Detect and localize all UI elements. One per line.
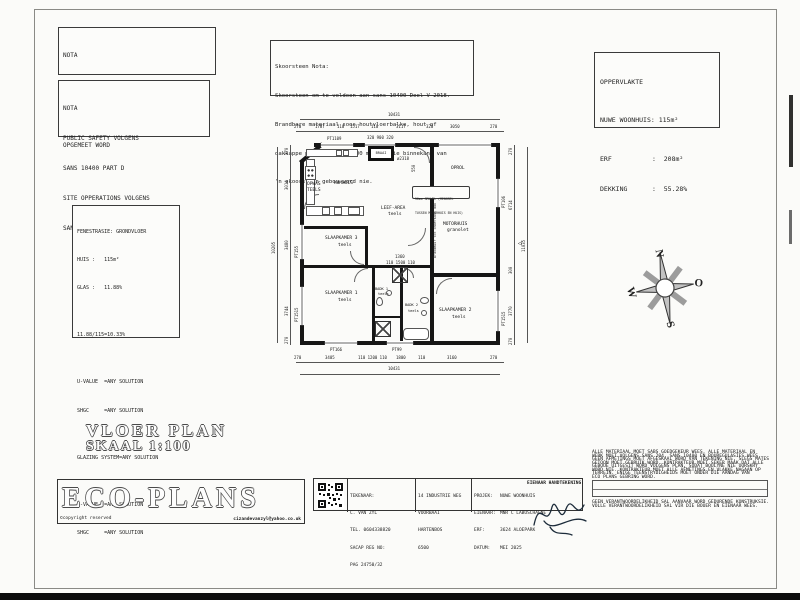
garage-rollup-door <box>438 143 492 147</box>
legal-disclaimer-bottom: GEEN VERANTWOORDELIKHEID SAL AANVAAR WOR… <box>592 501 769 508</box>
drawing-title: VLOER PLAN <box>86 421 227 441</box>
note-title: NOTA <box>63 51 211 61</box>
dim-line <box>300 119 500 120</box>
window-code: PT166 <box>330 347 342 352</box>
dim-mid: 1360 <box>395 254 405 259</box>
wall-bed3-right <box>365 226 368 266</box>
window-code: PT99 <box>392 347 402 352</box>
dim-550: 550 <box>411 158 416 172</box>
dim-bottom-total: 10431 <box>388 366 400 371</box>
toilet-1 <box>376 297 383 306</box>
kitchen-sink-2 <box>343 150 349 156</box>
shower-1 <box>392 267 408 283</box>
dim-sub: 320 900 320 <box>367 135 394 140</box>
note-chimney: Skoorsteen Nota: Skoorsteen om te voldoe… <box>270 40 474 96</box>
window-bed1 <box>300 286 304 326</box>
dim-mid: 110 1500 110 <box>386 260 415 265</box>
note-public-safety: NOTA PUBLIC SAFETY VOLGENS SANS 10400 PA… <box>58 80 210 137</box>
scan-artifact-right <box>789 95 793 167</box>
braai-unit: BRAAI <box>368 146 394 161</box>
dim-line <box>277 147 278 343</box>
stove <box>305 166 316 180</box>
area-summary: OPPERVLAKTE NUWE WOONHUIS: 115m² ERF: 20… <box>594 52 720 128</box>
window-code: PT106 <box>501 182 506 208</box>
legal-disclaimer-top: ALLE MATERIAAL MOET SABS GOEDGEKEUR WEES… <box>592 451 769 479</box>
compass-south: S <box>663 320 676 330</box>
room-label-scullery: OPWAS <box>307 182 321 187</box>
room-label-bed3: SLAAPKAMER 3 <box>325 236 358 241</box>
dim-left-total: 10205 <box>271 234 276 254</box>
room-label-bath2: BADK 2 <box>405 303 418 307</box>
note-title: NOTA <box>63 104 205 114</box>
room-label-bed2: SLAAPKAMER 2 <box>439 308 472 313</box>
note-doors-windows: NOTA ALLE DEURE EN VENSTERS MOET DEUR DI… <box>58 27 216 75</box>
dim-flue: ø2318 <box>397 156 409 161</box>
drawing-scale: SKAAL 1:100 <box>86 439 192 455</box>
tumble-dryer <box>334 207 342 215</box>
compass-rose: N O S W <box>621 241 710 335</box>
dim-line <box>290 145 291 345</box>
window-code: PT155 <box>294 228 299 258</box>
drafter-cell: TEKENAAR: C. VAN ZYL TEL. 0604338820 SAC… <box>350 482 391 581</box>
level-marker: ◁ <box>518 240 522 247</box>
dim-line <box>296 131 504 132</box>
window-bed1-south <box>324 341 358 345</box>
room-label-rollup: OPROL <box>451 166 465 171</box>
washing-machine <box>322 207 330 215</box>
window-garage <box>496 178 500 208</box>
dim-line <box>296 362 504 363</box>
shower-2 <box>375 321 391 337</box>
signature-field <box>592 480 768 497</box>
compass-north: N <box>653 249 666 259</box>
wall-bed3-top <box>304 226 365 229</box>
scan-artifact-bottom <box>0 593 800 600</box>
window-kitchen <box>320 143 354 147</box>
dim-top-total: 10431 <box>388 112 400 117</box>
toilet-2 <box>420 297 429 304</box>
logo-cell: ECO-PLANS ©copyright reserved cizandevan… <box>57 479 305 524</box>
area-row-erf: ERF: 208m² <box>600 154 714 164</box>
copyright-text: ©copyright reserved <box>60 516 111 521</box>
bathtub <box>403 328 429 340</box>
room-label-bath1: BADK 1 <box>375 287 388 291</box>
window-bed2 <box>496 290 500 332</box>
email-text: cizandevanzyl@yahoo.co.uk <box>233 517 301 522</box>
gravel-note: 50mm GRUWEL (MENGSEL TUSSEN MOTORHUIS EN… <box>412 186 470 199</box>
wall-bath1-inner <box>374 316 400 318</box>
window-code: PT1515 <box>294 292 299 322</box>
qr-code <box>317 482 344 509</box>
scan-artifact-right-2 <box>789 210 792 244</box>
compass-east: O <box>694 277 704 290</box>
area-row-house: NUWE WOONHUIS: 115m² <box>600 115 714 125</box>
signature-label: EIENAAR HANDTEKENING: <box>527 481 584 486</box>
kitchen-sink <box>336 150 342 156</box>
window-code: PT1109 <box>327 136 341 141</box>
window-bed3 <box>300 224 304 260</box>
room-label-living: LEEF-AREA <box>381 206 405 211</box>
address-cell: 14 INDUSTRIE WEG VOORBAAI HARTENBOS 6500 <box>418 482 461 563</box>
wall-garage-bottom <box>434 273 496 277</box>
area-title: OPPERVLAKTE <box>600 77 714 87</box>
company-logo: ECO-PLANS <box>62 483 260 515</box>
dim-line <box>514 145 515 345</box>
window-code: PT1515 <box>501 296 506 326</box>
room-label-bed1: SLAAPKAMER 1 <box>325 291 358 296</box>
double-sink <box>348 207 360 215</box>
fenestration-schedule: FENESTRASIE: GRONDVLOER HUIS : 115m² GLA… <box>72 205 180 338</box>
compass-west: W <box>624 286 639 300</box>
room-label-kitchen: KOMBUIS <box>334 181 353 186</box>
kitchen-counter-top <box>306 149 358 157</box>
owner-signature <box>526 487 598 539</box>
dim-line <box>527 147 528 343</box>
dim-line <box>300 374 500 375</box>
basin-2 <box>421 310 427 316</box>
area-row-dekking: DEKKING: 55.28% <box>600 184 714 194</box>
note-title: Skoorsteen Nota: <box>275 63 469 73</box>
floor-plan-sheet: NOTA ALLE DEURE EN VENSTERS MOET DEUR DI… <box>0 0 800 600</box>
window-bath <box>386 341 414 345</box>
